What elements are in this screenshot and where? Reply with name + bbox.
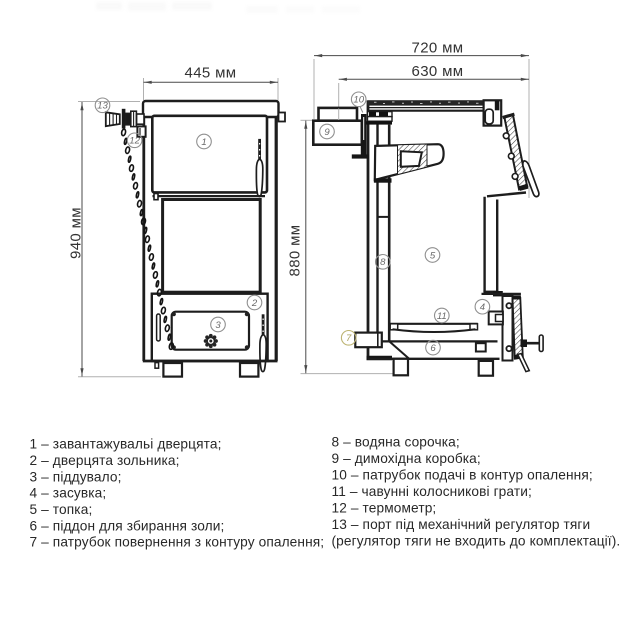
svg-text:13: 13: [97, 101, 108, 112]
svg-text:10: 10: [353, 95, 364, 106]
svg-text:12 – термометр;: 12 – термометр;: [332, 501, 437, 516]
svg-text:5: 5: [430, 250, 436, 261]
svg-text:445 мм: 445 мм: [185, 65, 237, 82]
svg-text:9 – димохідна коробка;: 9 – димохідна коробка;: [332, 451, 481, 466]
svg-text:12: 12: [129, 136, 140, 147]
svg-text:7: 7: [346, 333, 352, 344]
svg-text:880 мм: 880 мм: [287, 225, 304, 277]
svg-text:13 – порт під механічний регул: 13 – порт під механічний регулятор тяги: [332, 517, 591, 532]
svg-text:3: 3: [215, 320, 221, 331]
svg-text:3 – піддувало;: 3 – піддувало;: [30, 469, 122, 484]
svg-text:720 мм: 720 мм: [412, 39, 464, 56]
svg-text:2: 2: [251, 298, 258, 309]
svg-text:(регулятор тяги не входить до: (регулятор тяги не входить до комплектац…: [332, 534, 621, 549]
svg-text:940 мм: 940 мм: [68, 207, 85, 259]
svg-text:9: 9: [324, 127, 330, 138]
svg-text:5 – топка;: 5 – топка;: [30, 502, 93, 517]
svg-text:1 – завантажувальі дверцята;: 1 – завантажувальі дверцята;: [30, 437, 222, 452]
svg-text:11: 11: [437, 311, 447, 322]
svg-text:1: 1: [201, 137, 206, 148]
svg-text:4: 4: [480, 302, 485, 313]
svg-text:6: 6: [430, 343, 436, 354]
svg-text:10 – патрубок подачі в контур: 10 – патрубок подачі в контур опалення;: [332, 468, 593, 483]
svg-text:2 – дверцята зольника;: 2 – дверцята зольника;: [30, 453, 180, 468]
svg-text:11 – чавунні колосникові грати: 11 – чавунні колосникові грати;: [332, 484, 532, 499]
svg-text:6 – піддон для збирання золи;: 6 – піддон для збирання золи;: [30, 518, 225, 533]
svg-text:8: 8: [380, 257, 386, 268]
svg-text:7 – патрубок повернення з конт: 7 – патрубок повернення з контуру опален…: [30, 535, 325, 550]
svg-text:630 мм: 630 мм: [412, 63, 464, 80]
svg-text:8 – водяна сорочка;: 8 – водяна сорочка;: [332, 434, 460, 449]
svg-text:4 – засувка;: 4 – засувка;: [30, 486, 107, 501]
